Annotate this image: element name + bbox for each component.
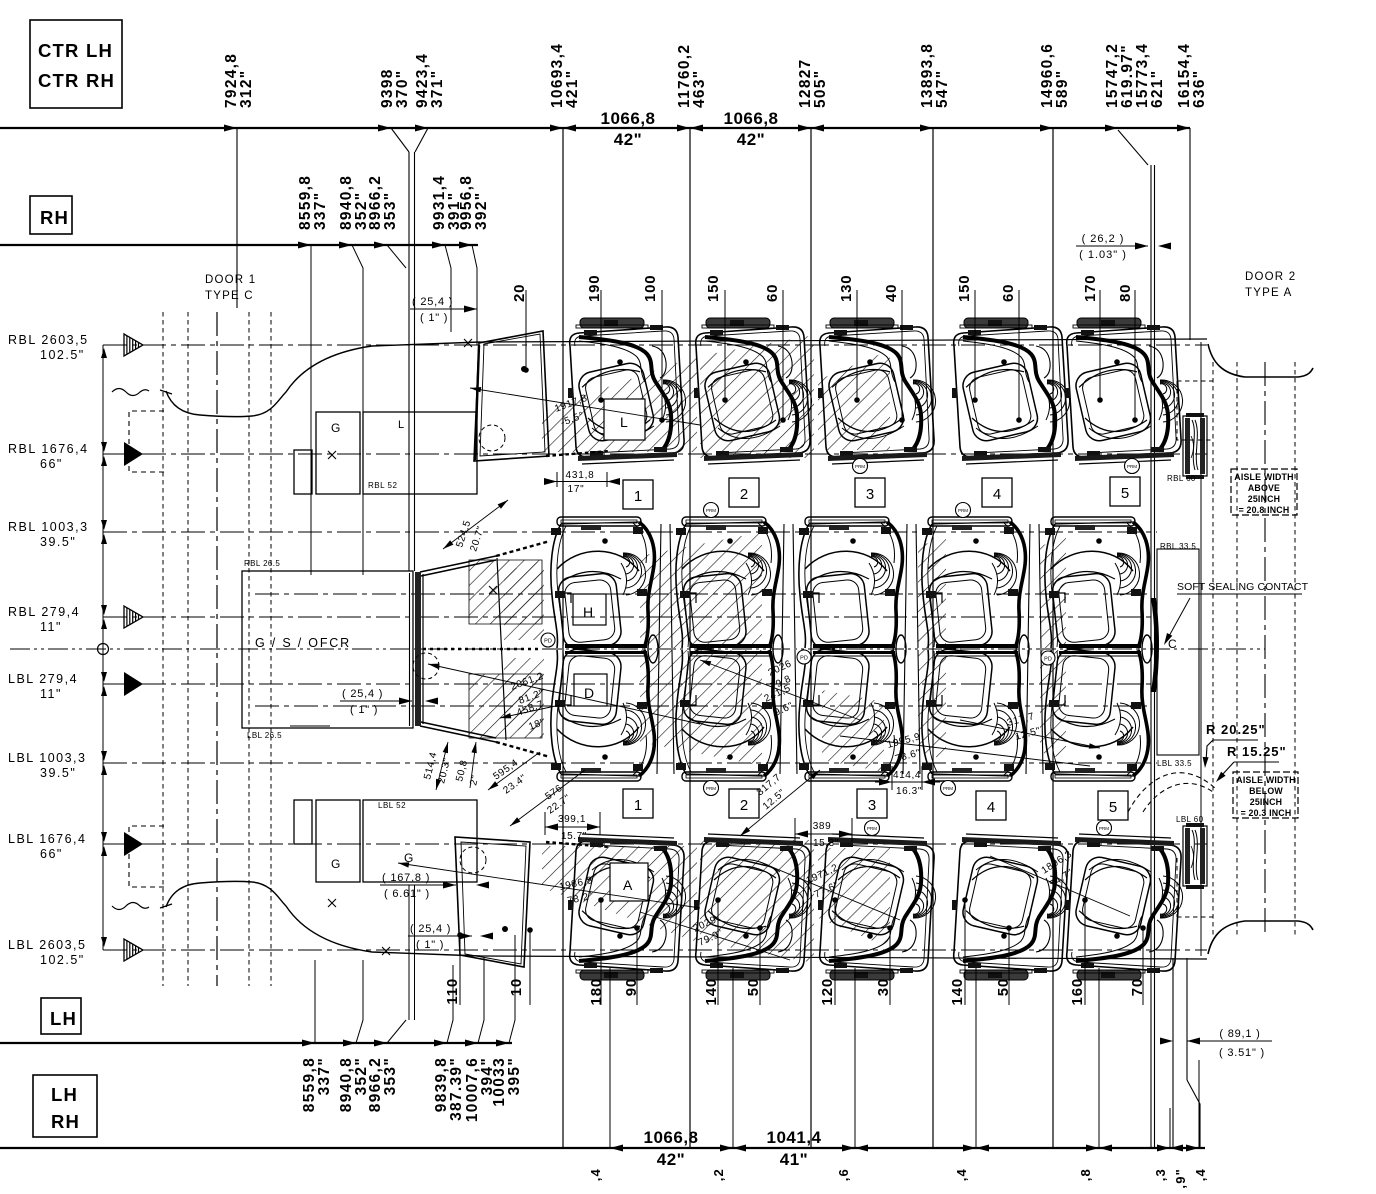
svg-text:5: 5	[1121, 485, 1129, 502]
svg-text:R 15.25": R 15.25"	[1227, 744, 1287, 759]
svg-text:11": 11"	[40, 620, 62, 634]
svg-text:( 6.61" ): ( 6.61" )	[384, 888, 430, 900]
svg-text:3: 3	[866, 486, 874, 503]
svg-text:PRM: PRM	[855, 464, 865, 469]
svg-text:16.3": 16.3"	[896, 786, 922, 797]
svg-text:102.5": 102.5"	[40, 953, 85, 967]
svg-text:337": 337"	[316, 1057, 333, 1095]
svg-text:RBL 2603,5: RBL 2603,5	[8, 333, 89, 347]
svg-text:( 26,2 ): ( 26,2 )	[1082, 233, 1125, 245]
svg-text:PD: PD	[800, 656, 808, 662]
svg-text:1066,8: 1066,8	[644, 1128, 699, 1147]
svg-text:4: 4	[993, 486, 1001, 503]
svg-text:150: 150	[956, 275, 973, 302]
svg-text:41": 41"	[780, 1150, 808, 1169]
svg-text:190: 190	[586, 275, 603, 302]
svg-text:CTR LH: CTR LH	[38, 40, 113, 61]
svg-text:399,1: 399,1	[558, 814, 586, 825]
svg-text:370": 370"	[394, 70, 411, 108]
svg-text:LBL 60: LBL 60	[1176, 815, 1204, 824]
svg-text:AISLE WIDTH: AISLE WIDTH	[1236, 775, 1295, 785]
svg-text:AISLE WIDTH: AISLE WIDTH	[1234, 472, 1293, 482]
svg-text:G: G	[331, 857, 341, 871]
svg-text:PRM: PRM	[958, 508, 968, 513]
svg-text:42": 42"	[737, 130, 765, 149]
svg-text:50: 50	[745, 978, 762, 996]
svg-text:80: 80	[1117, 284, 1134, 302]
svg-text:621": 621"	[1149, 70, 1166, 108]
svg-text:389: 389	[813, 821, 832, 832]
svg-text:387.39": 387.39"	[448, 1057, 465, 1121]
svg-text:4: 4	[987, 799, 995, 816]
svg-text:PRM: PRM	[706, 508, 716, 513]
svg-text:10: 10	[508, 978, 525, 996]
svg-text:DOOR 2: DOOR 2	[1245, 271, 1296, 283]
svg-text:,4: ,4	[1193, 1168, 1208, 1181]
svg-text:39.5": 39.5"	[40, 535, 76, 549]
svg-text:15.3": 15.3"	[813, 838, 839, 849]
svg-text:392": 392"	[473, 192, 490, 230]
svg-text:LBL 33.5: LBL 33.5	[1157, 759, 1192, 768]
svg-text:( 1" ): ( 1" )	[420, 312, 448, 324]
svg-text:LH: LH	[51, 1084, 78, 1105]
svg-text:100: 100	[642, 275, 659, 302]
svg-text:636": 636"	[1191, 70, 1208, 108]
svg-text:PRM: PRM	[706, 786, 716, 791]
svg-text:( 89,1 ): ( 89,1 )	[1219, 1028, 1260, 1040]
svg-text:L: L	[620, 414, 629, 430]
svg-text:102.5": 102.5"	[40, 348, 85, 362]
svg-text:DOOR 1: DOOR 1	[205, 274, 256, 286]
svg-text:L: L	[398, 419, 404, 431]
svg-text:337": 337"	[312, 192, 329, 230]
svg-text:589": 589"	[1054, 70, 1071, 108]
svg-text:1066,8: 1066,8	[724, 109, 779, 128]
svg-text:25INCH: 25INCH	[1248, 494, 1281, 504]
svg-text:150: 150	[705, 275, 722, 302]
svg-text:( 3.51" ): ( 3.51" )	[1219, 1047, 1265, 1059]
svg-text:LBL 279,4: LBL 279,4	[8, 672, 78, 686]
svg-text:,3: ,3	[1153, 1168, 1168, 1181]
svg-text:140: 140	[949, 978, 966, 1005]
svg-text:15.7": 15.7"	[561, 831, 587, 842]
svg-text:40: 40	[883, 284, 900, 302]
svg-text:= 20.3 INCH: = 20.3 INCH	[1241, 808, 1292, 818]
svg-text:PRM: PRM	[867, 826, 877, 831]
svg-text:17": 17"	[567, 484, 584, 495]
svg-text:371": 371"	[429, 70, 446, 108]
svg-text:60: 60	[1000, 284, 1017, 302]
svg-text:RBL 1676,4: RBL 1676,4	[8, 442, 89, 456]
svg-text:1: 1	[634, 488, 642, 505]
svg-text:G: G	[331, 421, 341, 435]
svg-text:11": 11"	[40, 687, 62, 701]
svg-text:( 167,8 ): ( 167,8 )	[382, 872, 430, 884]
svg-text:PD: PD	[1044, 657, 1052, 663]
svg-text:42": 42"	[614, 130, 642, 149]
svg-text:RBL 279,4: RBL 279,4	[8, 605, 80, 619]
svg-text:( 25,4 ): ( 25,4 )	[412, 296, 453, 308]
svg-text:42": 42"	[657, 1150, 685, 1169]
svg-text:SOFT SEALING CONTACT: SOFT SEALING CONTACT	[1177, 581, 1309, 593]
svg-text:353": 353"	[382, 192, 399, 230]
svg-text:BELOW: BELOW	[1249, 786, 1283, 796]
svg-text:5: 5	[1109, 799, 1117, 816]
svg-text:LBL 1003,3: LBL 1003,3	[8, 751, 86, 765]
svg-text:180: 180	[588, 978, 605, 1005]
svg-text:66": 66"	[40, 457, 63, 471]
svg-text:( 1" ): ( 1" )	[416, 939, 444, 951]
svg-text:PRM: PRM	[1127, 464, 1137, 469]
svg-text:505": 505"	[812, 70, 829, 108]
svg-text:G / S / OFCR: G / S / OFCR	[255, 636, 351, 650]
svg-text:312": 312"	[238, 70, 255, 108]
svg-text:353": 353"	[382, 1057, 399, 1095]
svg-text:20: 20	[511, 284, 528, 302]
svg-text:3: 3	[868, 797, 876, 814]
svg-text:R 20.25": R 20.25"	[1206, 722, 1266, 737]
svg-text:RBL 60: RBL 60	[1167, 474, 1196, 483]
svg-text:PRM: PRM	[943, 786, 953, 791]
svg-text:RBL 33.5: RBL 33.5	[1160, 542, 1196, 551]
svg-text:120: 120	[819, 978, 836, 1005]
svg-text:1041,4: 1041,4	[767, 1128, 822, 1147]
svg-text:431,8: 431,8	[565, 470, 594, 481]
svg-text:( 25,4 ): ( 25,4 )	[342, 688, 383, 700]
svg-text:= 20.8 INCH: = 20.8 INCH	[1239, 505, 1290, 515]
svg-text:130: 130	[838, 275, 855, 302]
svg-text:PRM: PRM	[1099, 826, 1109, 831]
svg-text:30: 30	[875, 978, 892, 996]
svg-text:ABOVE: ABOVE	[1248, 483, 1280, 493]
svg-text:,8: ,8	[1078, 1168, 1093, 1181]
svg-text:414,4: 414,4	[893, 770, 921, 781]
svg-text:2: 2	[740, 486, 748, 503]
svg-text:LBL 1676,4: LBL 1676,4	[8, 832, 86, 846]
svg-text:25INCH: 25INCH	[1250, 797, 1283, 807]
svg-text:160: 160	[1069, 978, 1086, 1005]
svg-text:TYPE C: TYPE C	[205, 290, 254, 302]
svg-text:,4: ,4	[954, 1168, 969, 1181]
svg-text:( 25,4 ): ( 25,4 )	[410, 923, 451, 935]
svg-text:66": 66"	[40, 847, 63, 861]
svg-text:LBL 26.5: LBL 26.5	[247, 731, 282, 740]
svg-text:,4: ,4	[588, 1168, 603, 1181]
svg-text:1: 1	[634, 797, 642, 814]
svg-text:RBL 52: RBL 52	[368, 481, 397, 490]
svg-text:PD: PD	[544, 639, 552, 645]
svg-text:39.5": 39.5"	[40, 766, 76, 780]
svg-text:CTR RH: CTR RH	[38, 70, 115, 91]
svg-text:2: 2	[740, 797, 748, 814]
svg-text:LBL 2603,5: LBL 2603,5	[8, 938, 86, 952]
svg-text:A: A	[623, 877, 633, 893]
svg-text:,9": ,9"	[1173, 1168, 1188, 1189]
svg-text:LH: LH	[50, 1008, 77, 1029]
svg-text:547": 547"	[934, 70, 951, 108]
svg-text:H: H	[583, 604, 594, 620]
svg-text:140: 140	[703, 978, 720, 1005]
svg-text:421": 421"	[564, 70, 581, 108]
svg-text:1066,8: 1066,8	[601, 109, 656, 128]
svg-text:RH: RH	[40, 207, 69, 228]
svg-text:60: 60	[764, 284, 781, 302]
svg-text:TYPE A: TYPE A	[1245, 287, 1292, 299]
svg-text:LBL 52: LBL 52	[378, 801, 406, 810]
svg-text:( 1.03" ): ( 1.03" )	[1079, 249, 1127, 261]
svg-text:,2: ,2	[711, 1168, 726, 1181]
svg-text:C: C	[1168, 637, 1177, 651]
svg-text:395": 395"	[506, 1057, 523, 1095]
svg-text:170: 170	[1082, 275, 1099, 302]
svg-text:RBL 1003,3: RBL 1003,3	[8, 520, 89, 534]
svg-text:463": 463"	[691, 70, 708, 108]
svg-text:RBL 26.5: RBL 26.5	[244, 559, 280, 568]
svg-text:,6: ,6	[836, 1168, 851, 1181]
svg-text:RH: RH	[51, 1111, 80, 1132]
